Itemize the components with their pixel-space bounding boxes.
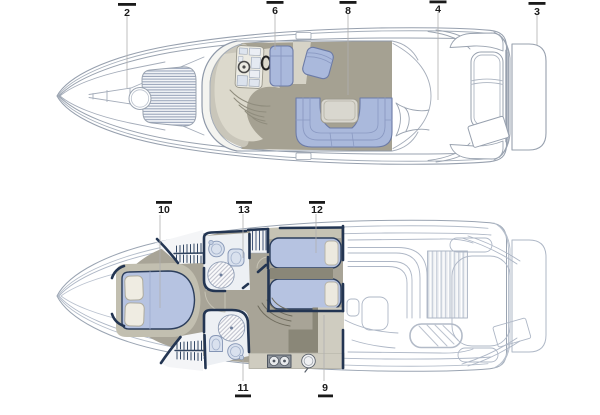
svg-text:9: 9	[322, 382, 328, 394]
svg-text:11: 11	[237, 382, 248, 394]
svg-text:4: 4	[435, 4, 441, 16]
svg-text:12: 12	[311, 204, 323, 216]
svg-text:13: 13	[238, 204, 250, 216]
svg-text:3: 3	[534, 6, 540, 18]
svg-text:8: 8	[345, 5, 351, 17]
svg-text:6: 6	[272, 5, 278, 17]
svg-text:2: 2	[124, 7, 130, 19]
svg-text:10: 10	[158, 204, 170, 216]
